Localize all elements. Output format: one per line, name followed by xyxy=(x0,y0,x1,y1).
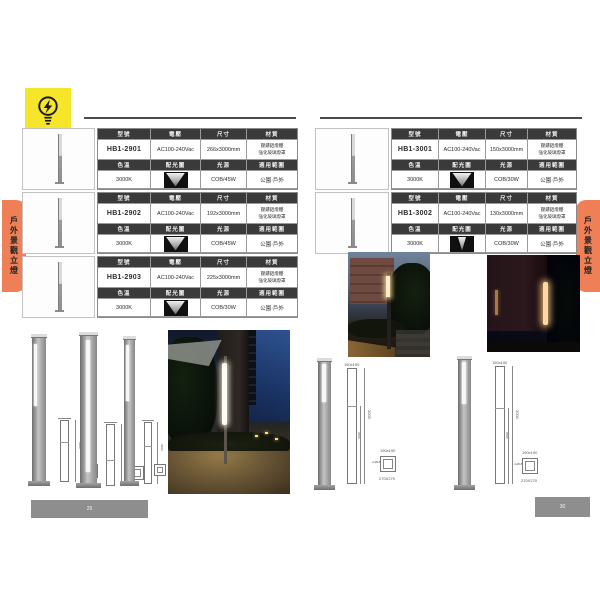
base-detail-3 xyxy=(154,464,166,476)
hdr-voltage: 電壓 xyxy=(151,193,201,204)
product-thumb-hb1-2901 xyxy=(22,128,95,190)
light-source-value: COB/45W xyxy=(201,171,247,189)
color-temp-value: 3000K xyxy=(98,299,151,317)
hdr-model: 型號 xyxy=(98,193,151,204)
hdr-light-source: 光源 xyxy=(201,224,247,235)
installation-photo-right-2 xyxy=(487,255,580,352)
base-detail-5: 190x190 4-Ø18 270X270 xyxy=(514,450,544,494)
page-number-right: 30 xyxy=(535,497,590,517)
hdr-voltage: 電壓 xyxy=(151,129,201,140)
hdr-light-source: 光源 xyxy=(201,288,247,299)
size-value: 225x3000mm xyxy=(201,268,247,288)
hdr-distribution: 配光圖 xyxy=(151,224,201,235)
application-value: 公園·戶外 xyxy=(528,235,576,253)
hdr-size: 尺寸 xyxy=(201,193,247,204)
hdr-light-source: 光源 xyxy=(486,160,528,171)
hdr-application: 適用範圍 xyxy=(247,160,297,171)
hdr-size: 尺寸 xyxy=(201,257,247,268)
material-value: 壓鑄鋁燈體強化玻璃燈罩 xyxy=(247,268,297,288)
voltage-value: AC100-240Vac xyxy=(151,140,201,160)
base-detail-4: 190x190 4-Ø18 270X270 xyxy=(372,448,402,492)
wide-beam-icon xyxy=(164,172,188,188)
color-temp-value: 3000K xyxy=(98,171,151,189)
bulb-lightning-icon xyxy=(33,94,63,128)
material-value: 壓鑄鋁燈體強化玻璃燈罩 xyxy=(247,140,297,160)
spec-table-hb1-3001: 型號 電壓 尺寸 材質 HB1-3001 AC100-240Vac 150x30… xyxy=(391,128,577,190)
spec-table-hb1-2903: 型號 電壓 尺寸 材質 HB1-2903 AC100-240Vac 225x30… xyxy=(97,256,298,318)
hdr-material: 材質 xyxy=(528,129,576,140)
model-value: HB1-2902 xyxy=(98,204,151,224)
dimension-drawing-3: 3000 xyxy=(142,418,166,488)
hdr-material: 材質 xyxy=(528,193,576,204)
color-temp-value: 3000K xyxy=(392,235,439,253)
light-source-value: COB/45W xyxy=(201,235,247,253)
installation-photo-right-1 xyxy=(348,252,430,357)
hdr-material: 材質 xyxy=(247,129,297,140)
hdr-voltage: 電壓 xyxy=(439,193,486,204)
hdr-material: 材質 xyxy=(247,257,297,268)
product-thumb-hb1-2902 xyxy=(22,192,95,254)
color-temp-value: 3000K xyxy=(392,171,439,189)
distribution-cell xyxy=(151,299,201,317)
application-value: 公園·戶外 xyxy=(247,235,297,253)
hdr-size: 尺寸 xyxy=(486,193,528,204)
light-source-value: COB/30W xyxy=(486,171,528,189)
product-thumb-hb1-2903 xyxy=(22,256,95,318)
hdr-color-temp: 色溫 xyxy=(98,224,151,235)
application-value: 公園·戶外 xyxy=(247,171,297,189)
hdr-voltage: 電壓 xyxy=(151,257,201,268)
model-value: HB1-3002 xyxy=(392,204,439,224)
hdr-color-temp: 色溫 xyxy=(98,288,151,299)
voltage-value: AC100-240Vac xyxy=(439,140,486,160)
hdr-distribution: 配光圖 xyxy=(151,160,201,171)
installation-photo-left-page xyxy=(168,330,290,494)
material-value: 壓鑄鋁燈體強化玻璃燈罩 xyxy=(528,204,576,224)
hdr-color-temp: 色溫 xyxy=(392,224,439,235)
model-value: HB1-3001 xyxy=(392,140,439,160)
product-thumb-hb1-3001 xyxy=(315,128,389,190)
hdr-application: 適用範圍 xyxy=(247,224,297,235)
distribution-cell xyxy=(439,171,486,189)
distribution-cell xyxy=(151,235,201,253)
application-value: 公園·戶外 xyxy=(247,299,297,317)
voltage-value: AC100-240Vac xyxy=(151,204,201,224)
pole-render-1 xyxy=(32,334,46,482)
size-value: 130x3000mm xyxy=(486,204,528,224)
pole-render-5 xyxy=(458,356,471,486)
pole-render-3 xyxy=(124,336,135,482)
header-rule-right xyxy=(320,117,582,119)
narrow-beam-icon xyxy=(450,236,474,252)
spec-table-hb1-3002: 型號 電壓 尺寸 材質 HB1-3002 AC100-240Vac 130x30… xyxy=(391,192,577,254)
header-rule-left xyxy=(84,117,296,119)
color-temp-value: 3000K xyxy=(98,235,151,253)
hdr-color-temp: 色溫 xyxy=(392,160,439,171)
size-value: 150x3000mm xyxy=(486,140,528,160)
hdr-distribution: 配光圖 xyxy=(439,224,486,235)
hdr-distribution: 配光圖 xyxy=(439,160,486,171)
hdr-voltage: 電壓 xyxy=(439,129,486,140)
wide-beam-icon xyxy=(164,236,188,252)
hdr-distribution: 配光圖 xyxy=(151,288,201,299)
hdr-application: 適用範圍 xyxy=(247,288,297,299)
hdr-size: 尺寸 xyxy=(486,129,528,140)
model-value: HB1-2901 xyxy=(98,140,151,160)
catalog-spread: 戶外景觀立燈 戶外景觀立燈 型號 電壓 尺寸 材質 HB1-2901 AC100… xyxy=(0,0,600,600)
voltage-value: AC100-240Vac xyxy=(151,268,201,288)
distribution-cell xyxy=(439,235,486,253)
pole-render-2 xyxy=(80,332,97,484)
hdr-application: 適用範圍 xyxy=(528,224,576,235)
model-value: HB1-2903 xyxy=(98,268,151,288)
hdr-model: 型號 xyxy=(392,193,439,204)
hdr-model: 型號 xyxy=(98,129,151,140)
page-number-left: 29 xyxy=(31,500,148,518)
light-source-value: COB/30W xyxy=(201,299,247,317)
spec-table-hb1-2902: 型號 電壓 尺寸 材質 HB1-2902 AC100-240Vac 192x30… xyxy=(97,192,298,254)
wide-beam-icon xyxy=(450,172,474,188)
material-value: 壓鑄鋁燈體強化玻璃燈罩 xyxy=(528,140,576,160)
hdr-model: 型號 xyxy=(392,129,439,140)
product-thumb-hb1-3002 xyxy=(315,192,389,254)
pole-render-4 xyxy=(318,358,331,486)
hdr-light-source: 光源 xyxy=(486,224,528,235)
application-value: 公園·戶外 xyxy=(528,171,576,189)
light-source-value: COB/30W xyxy=(486,235,528,253)
hdr-light-source: 光源 xyxy=(201,160,247,171)
size-value: 192x3000mm xyxy=(201,204,247,224)
hdr-model: 型號 xyxy=(98,257,151,268)
hdr-size: 尺寸 xyxy=(201,129,247,140)
distribution-cell xyxy=(151,171,201,189)
hdr-material: 材質 xyxy=(247,193,297,204)
size-value: 266x3000mm xyxy=(201,140,247,160)
spec-table-hb1-2901: 型號 電壓 尺寸 材質 HB1-2901 AC100-240Vac 266x30… xyxy=(97,128,298,190)
hdr-color-temp: 色溫 xyxy=(98,160,151,171)
material-value: 壓鑄鋁燈體強化玻璃燈罩 xyxy=(247,204,297,224)
hdr-application: 適用範圍 xyxy=(528,160,576,171)
wide-beam-icon xyxy=(164,300,188,316)
voltage-value: AC100-240Vac xyxy=(439,204,486,224)
